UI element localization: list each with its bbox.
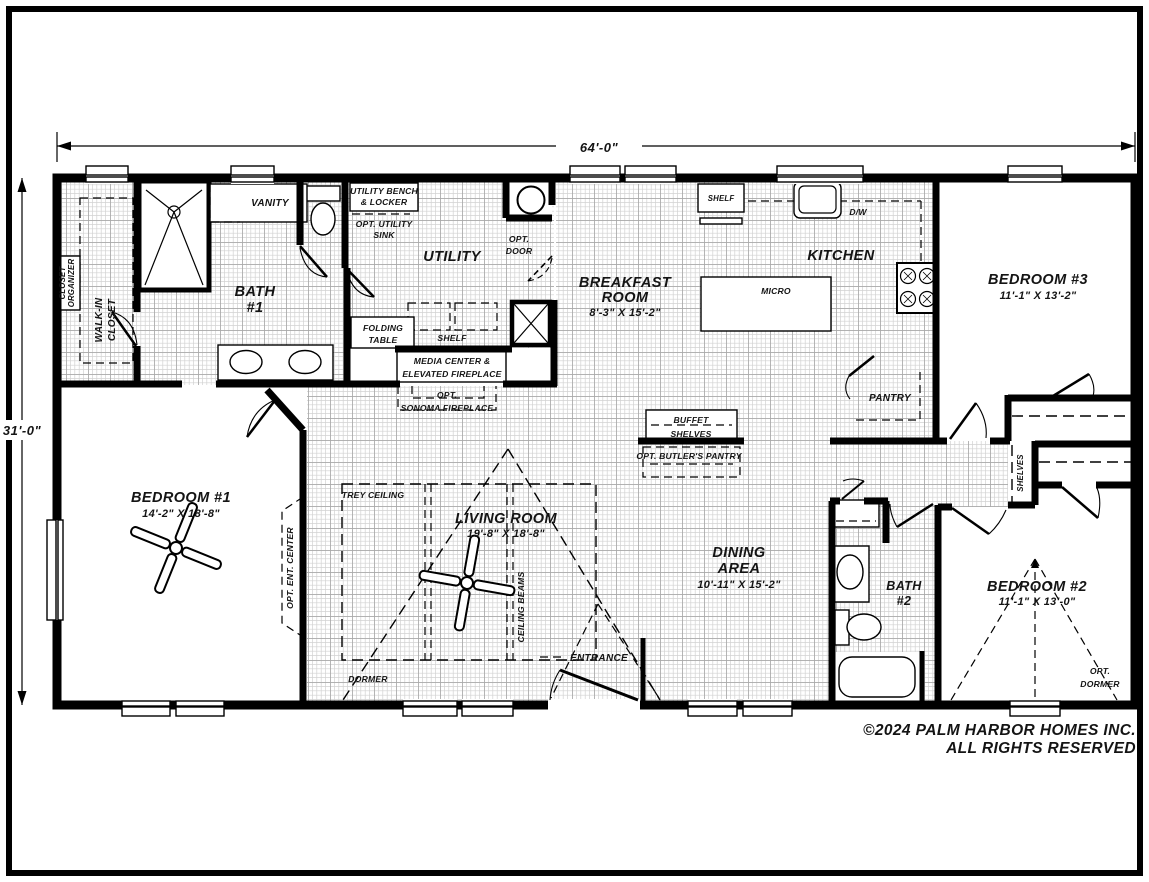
copyright-line-2: ALL RIGHTS RESERVED — [945, 740, 1136, 757]
door-bedroom3 — [950, 403, 986, 439]
bath2-tub — [834, 652, 920, 701]
bedroom1-label: BEDROOM #1 — [131, 490, 231, 506]
dining-dims: 10'-11" X 15'-2" — [697, 579, 781, 591]
entrance-opening — [548, 699, 640, 711]
utility-bench-label-2: & LOCKER — [361, 197, 408, 207]
dining-label-2: AREA — [717, 561, 761, 577]
utility-bench-label-1: UTILITY BENCH — [350, 186, 418, 196]
opt-dormer-label-1: OPT. — [1090, 666, 1110, 676]
bedroom2-dims: 11'-1" X 13'-0" — [999, 596, 1076, 608]
bedroom1-dims: 14'-2" X 18'-8" — [142, 508, 220, 520]
water-heater-box — [512, 302, 550, 345]
opt-sonoma-label-1: OPT. — [437, 390, 457, 400]
opt-ent-center-label: OPT. ENT. CENTER — [285, 527, 295, 609]
dimension-width-label: 64'-0" — [580, 140, 619, 155]
dormer-label: DORMER — [348, 674, 388, 684]
floor-plan-canvas: 64'-0" 31'-0" BEDROOM #1 14'-2" X 18'-8"… — [0, 0, 1149, 882]
bath1-label-1: BATH — [235, 284, 276, 300]
window-top-closet — [86, 166, 128, 184]
vanity-label: VANITY — [251, 198, 290, 209]
closet-organizer-label-2: ORGANIZER — [67, 259, 76, 308]
kitchen-label: KITCHEN — [807, 248, 874, 264]
folding-table-label-1: FOLDING — [363, 323, 403, 333]
media-center-label-1: MEDIA CENTER & — [414, 356, 491, 366]
buffet-label-2: SHELVES — [670, 429, 711, 439]
window-top-bedroom3 — [1008, 166, 1062, 184]
window-bottom-dining-2 — [743, 699, 792, 716]
dw-label: D/W — [849, 207, 867, 217]
window-top-breakfast-2 — [625, 166, 676, 184]
floor-plan-page: 64'-0" 31'-0" BEDROOM #1 14'-2" X 18'-8"… — [0, 0, 1149, 882]
bedroom3-dims: 11'-1" X 13'-2" — [1000, 290, 1077, 302]
breakfast-label-2: ROOM — [602, 290, 649, 306]
door-bedroom1 — [247, 399, 276, 437]
opt-utility-sink-label-2: SINK — [373, 230, 395, 240]
window-left-bedroom1 — [47, 520, 63, 620]
living-room-dims: 19'-8" X 18'-8" — [467, 528, 545, 540]
shelf-kitchen-label: SHELF — [708, 194, 735, 203]
dimension-height-label: 31'-0" — [3, 423, 42, 438]
dimension-top: 64'-0" — [57, 132, 1135, 162]
micro-label: MICRO — [761, 286, 791, 296]
window-bottom-dining-1 — [688, 699, 737, 716]
breakfast-dims: 8'-3" X 15'-2" — [589, 307, 661, 319]
buffet-label-1: BUFFET — [673, 415, 709, 425]
media-center-label-2: ELEVATED FIREPLACE — [402, 369, 501, 379]
kitchen-sink — [794, 182, 841, 218]
breakfast-label-1: BREAKFAST — [579, 275, 672, 291]
door-bedroom3-closet — [1053, 374, 1094, 396]
closet-organizer-label-1: CLOSET — [58, 266, 67, 300]
bath1-label-2: #1 — [247, 300, 264, 316]
window-top-kitchen — [777, 166, 863, 184]
opt-butlers-pantry-label: OPT. BUTLER'S PANTRY — [636, 451, 742, 461]
laundry-tub — [508, 182, 552, 218]
bath2-vanity — [831, 546, 869, 602]
opt-dormer-label-2: DORMER — [1080, 679, 1120, 689]
window-top-breakfast-1 — [570, 166, 620, 184]
pantry-label: PANTRY — [869, 393, 912, 404]
dining-label-1: DINING — [712, 545, 765, 561]
kitchen-shelf — [698, 184, 744, 224]
opt-door-label-2: DOOR — [506, 246, 533, 256]
door-bedroom2 — [952, 508, 1006, 534]
walk-in-closet-label-1: WALK-IN — [94, 297, 105, 342]
copyright: ©2024 PALM HARBOR HOMES INC. ALL RIGHTS … — [863, 722, 1136, 757]
utility-label: UTILITY — [423, 249, 482, 265]
shower — [139, 181, 209, 290]
opt-sonoma-label-2: SONOMA FIREPLACE — [401, 403, 494, 413]
trey-ceiling-label: TREY CEILING — [342, 490, 405, 500]
living-room-label: LIVING ROOM — [455, 511, 557, 527]
window-bottom-bed1-2 — [176, 699, 224, 716]
opt-utility-sink-label-1: OPT. UTILITY — [356, 219, 414, 229]
opt-door-label-1: OPT. — [509, 234, 529, 244]
entrance-label: ENTRANCE — [570, 653, 628, 664]
bedroom3-label: BEDROOM #3 — [988, 272, 1088, 288]
walk-in-closet-label-2: CLOSET — [107, 298, 118, 341]
shelf-utility-label: SHELF — [437, 333, 467, 343]
bath2-label-2: #2 — [897, 594, 912, 608]
range — [897, 263, 937, 313]
bedroom2-label: BEDROOM #2 — [987, 579, 1087, 595]
window-bottom-living-2 — [462, 699, 513, 716]
window-bottom-bedroom2 — [1010, 699, 1060, 716]
shelves-hall-label: SHELVES — [1016, 454, 1025, 492]
ceiling-beams-label: CEILING BEAMS — [516, 572, 526, 643]
window-top-vanity — [231, 166, 274, 184]
window-bottom-living-1 — [403, 699, 457, 716]
window-bottom-bed1-1 — [122, 699, 170, 716]
door-bedroom2-closet — [1062, 487, 1100, 518]
bath2-label-1: BATH — [886, 579, 922, 593]
copyright-line-1: ©2024 PALM HARBOR HOMES INC. — [863, 722, 1136, 739]
folding-table-label-2: TABLE — [368, 335, 397, 345]
double-vanity-bath1 — [218, 345, 333, 380]
